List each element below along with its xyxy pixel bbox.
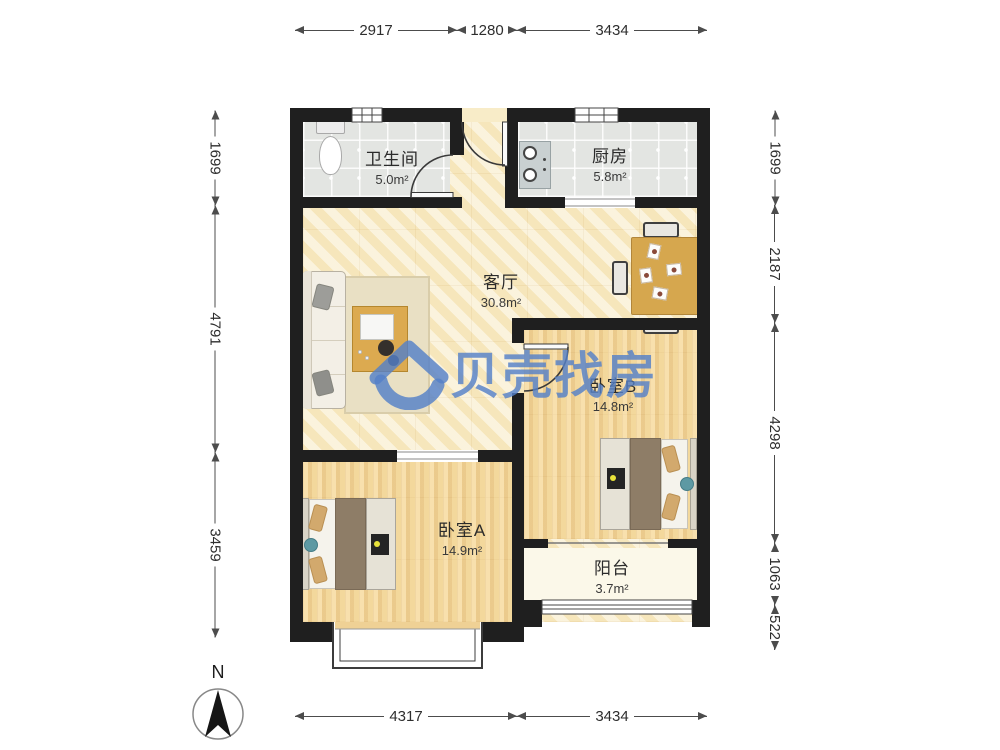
dim-left-1: 1699 [206, 110, 224, 205]
room-label-bedroom-a: 卧室A 14.9m² [438, 516, 486, 558]
room-area: 5.0m² [365, 172, 419, 187]
dim-bottom-2: 3434 [517, 707, 707, 725]
dim-bottom-1: 4317 [295, 707, 517, 725]
floor-plan-canvas: 卫生间 5.0m² 厨房 5.8m² 客厅 30.8m² 卧室B 14.8m² … [0, 0, 1000, 750]
kitchen-opening [565, 197, 635, 208]
room-area: 5.8m² [592, 169, 628, 184]
north-label: N [190, 662, 246, 682]
dim-top-2: 1280 [457, 21, 517, 39]
room-area: 14.9m² [438, 543, 486, 558]
bedroom-a-opening [397, 450, 478, 462]
north-arrow-icon [190, 682, 246, 744]
room-name: 客厅 [481, 268, 521, 293]
dim-right-4: 1063 [766, 543, 784, 605]
watermark-text: 贝壳找房 [450, 336, 658, 408]
entry-door-icon [462, 122, 508, 166]
dim-left-2: 4791 [206, 205, 224, 452]
room-label-balcony: 阳台 3.7m² [594, 554, 630, 596]
kitchen-window-icon [575, 108, 618, 122]
beike-logo-icon [366, 336, 458, 410]
room-area: 30.8m² [481, 295, 521, 310]
room-label-living: 客厅 30.8m² [481, 268, 521, 310]
dim-top-3: 3434 [517, 21, 707, 39]
room-label-bathroom: 卫生间 5.0m² [365, 145, 419, 187]
bay-window-icon [333, 622, 482, 668]
dim-right-3: 4298 [766, 323, 784, 543]
room-name: 厨房 [592, 142, 628, 167]
room-name: 阳台 [594, 554, 630, 579]
balcony-window-icon [542, 600, 692, 614]
room-label-kitchen: 厨房 5.8m² [592, 142, 628, 184]
room-name: 卫生间 [365, 145, 419, 170]
north-indicator: N [190, 662, 246, 749]
dim-right-1: 1699 [766, 110, 784, 205]
dim-right-2: 2187 [766, 205, 784, 323]
dim-right-5: 522 [766, 605, 784, 637]
dim-top-1: 2917 [295, 21, 457, 39]
room-name: 卧室A [438, 516, 486, 541]
room-area: 3.7m² [594, 581, 630, 596]
dim-left-3: 3459 [206, 452, 224, 637]
bathroom-window-icon [352, 108, 382, 122]
